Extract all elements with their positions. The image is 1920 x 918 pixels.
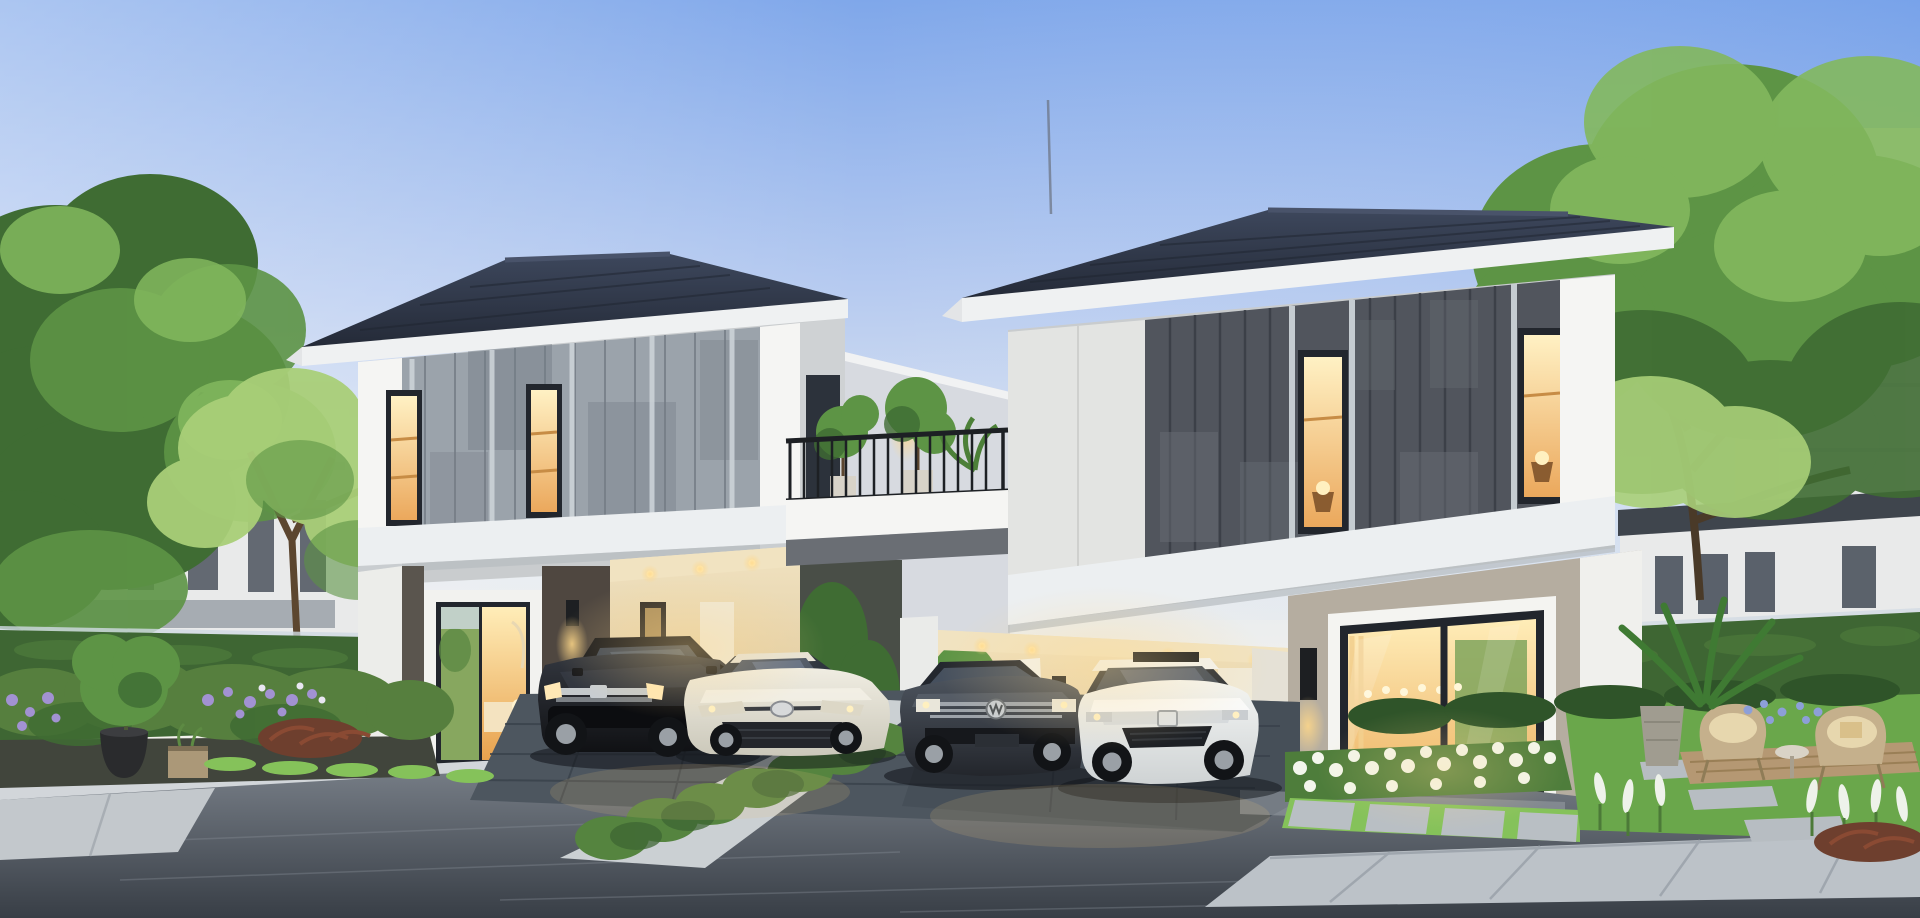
upper-window-2	[1518, 328, 1566, 504]
scene-canvas	[0, 0, 1920, 918]
license-plate	[975, 734, 1019, 747]
rendered-photo	[0, 0, 1920, 918]
corner-pillar-right	[1560, 275, 1615, 512]
concrete-planter	[1640, 706, 1684, 766]
cushion	[1709, 713, 1757, 743]
throw-pillow	[1840, 722, 1862, 738]
corner-wall-left	[1008, 320, 1145, 578]
upper-window-2	[526, 384, 562, 518]
upper-window-1	[1298, 350, 1348, 534]
upper-window-1	[386, 390, 422, 526]
wall-sconce	[1300, 648, 1317, 700]
